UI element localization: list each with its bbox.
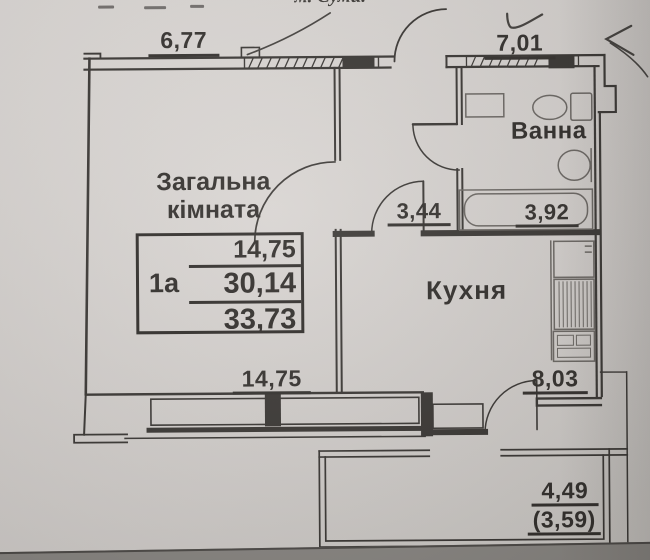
room-label-living: Загальна кімната [137, 167, 289, 224]
dim-balcony-area: 4,49 [531, 478, 598, 507]
plan-linework [0, 0, 650, 560]
unit-number: 1а [139, 236, 190, 331]
room-label-kitchen: Кухня [426, 275, 507, 307]
entrance-door-arc [394, 9, 446, 61]
dim-living-bottom: 14,75 [233, 366, 311, 395]
dim-kitchen-area: 8,03 [523, 366, 588, 395]
dim-balcony-area-reduced: (3,59) [528, 507, 601, 536]
pen-check-mark [507, 13, 542, 27]
pen-tail-mark [610, 43, 647, 77]
counter-edge [551, 240, 552, 360]
floor-plan-photo: м. Суми. [0, 0, 650, 560]
bath-sink-icon [558, 150, 590, 180]
dim-living-top: 6,77 [148, 28, 219, 58]
stove-icon [554, 279, 594, 329]
unit-area-table: 1а 14,75 30,14 33,73 [136, 232, 305, 334]
room-label-living-line2: кімната [137, 195, 289, 224]
room-label-bathroom: Ванна [511, 117, 587, 146]
total-area-value: 33,73 [189, 303, 301, 337]
plan-sheet: м. Суми. [0, 0, 650, 560]
bath-door-arc [413, 124, 459, 170]
unit-area-values: 14,75 30,14 33,73 [189, 235, 302, 331]
living-area-value: 14,75 [189, 235, 301, 268]
dim-hall-area: 3,44 [387, 199, 450, 227]
room-label-living-line1: Загальна [137, 167, 289, 196]
dim-bath-area: 3,92 [515, 200, 578, 228]
pen-angle-mark [606, 26, 633, 55]
dim-bath-top: 7,01 [484, 30, 555, 60]
toilet-bowl-icon [533, 95, 567, 119]
apartment-area-value: 30,14 [189, 267, 301, 304]
washer-icon [466, 94, 504, 117]
